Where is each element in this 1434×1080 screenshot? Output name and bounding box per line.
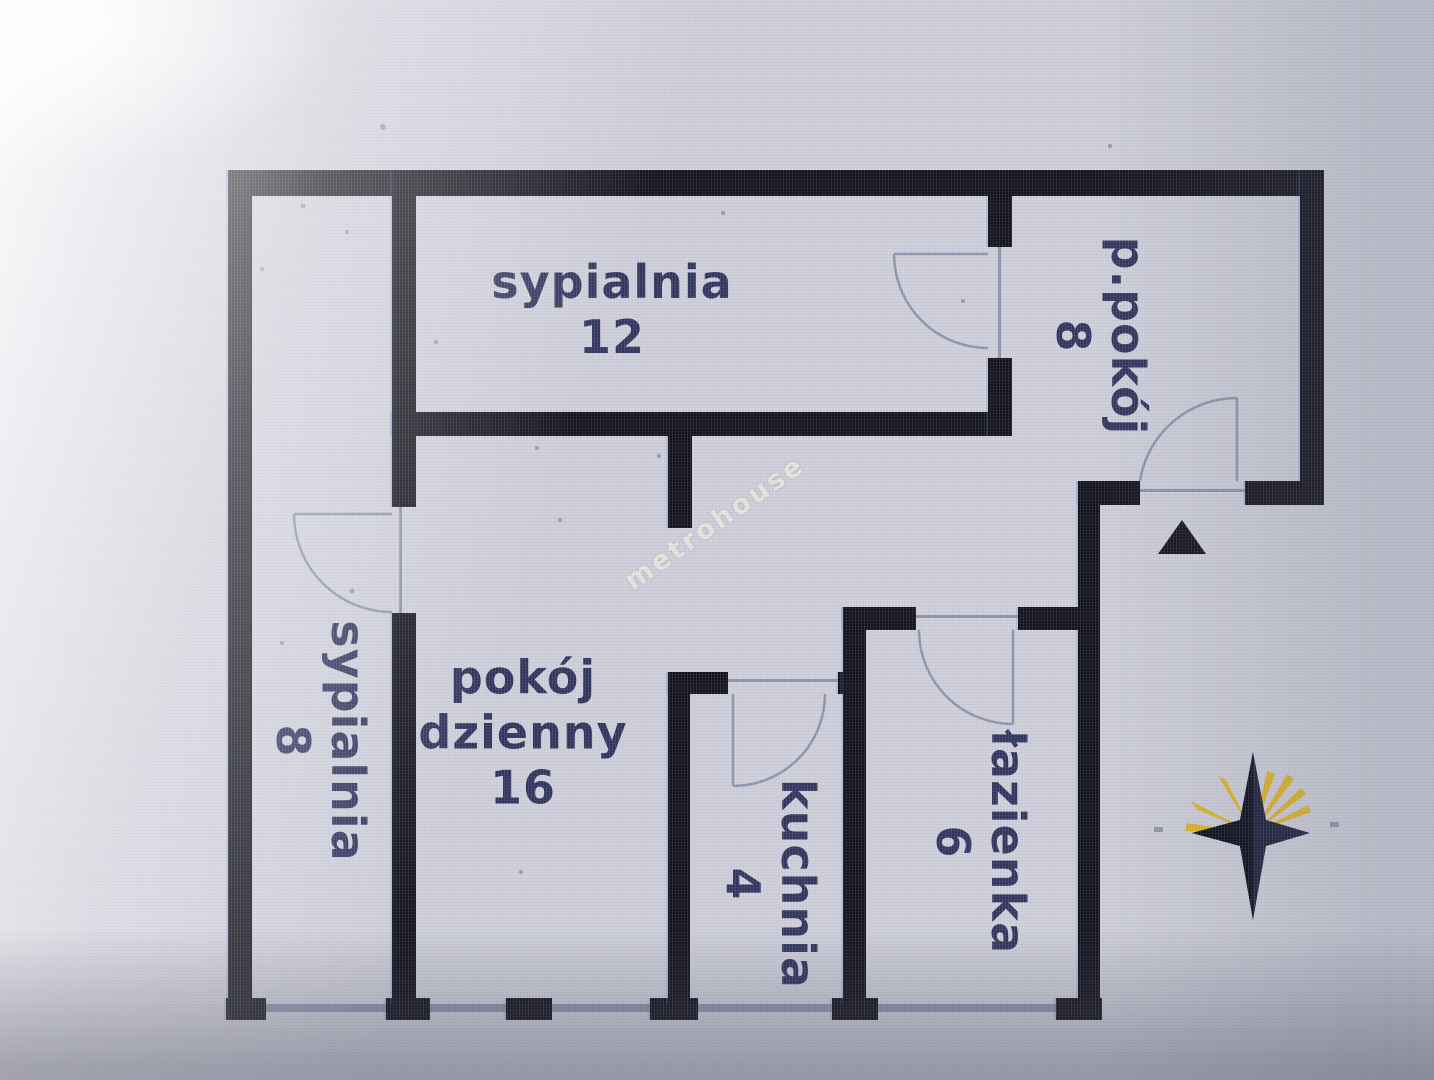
door-threshold-sypialnia12 — [998, 247, 1001, 358]
door-threshold-sypialnia8 — [399, 507, 402, 613]
room-label-p-pokoj: p.pokój 8 — [1045, 237, 1155, 436]
room-name: p.pokój — [1100, 237, 1155, 436]
wall-sypialnia8-right-lower — [392, 613, 416, 1004]
room-name: kuchnia — [770, 779, 825, 989]
wall-sypialnia12-ppokoj-lower — [988, 358, 1012, 436]
door-threshold-entrance — [1140, 489, 1245, 492]
wall-kuchnia-left — [668, 672, 690, 1004]
room-area: 6 — [925, 730, 980, 954]
room-area: 8 — [265, 620, 320, 861]
floor-plan-photo: sypialnia 12 p.pokój 8 sypialnia 8 pokój… — [0, 0, 1434, 1080]
room-label-lazienka: łazienka 6 — [925, 730, 1035, 954]
wall-right-upper — [1300, 170, 1324, 505]
wall-foot — [1056, 998, 1102, 1020]
wall-kuchnia-lazienka — [843, 607, 866, 1004]
room-name: dzienny — [418, 706, 627, 761]
wall-left — [228, 170, 252, 1016]
wall-entry-right-stub — [1245, 481, 1324, 505]
room-area: 12 — [491, 310, 732, 365]
room-name: sypialnia — [491, 255, 732, 310]
wall-sypialnia12-bottom — [392, 412, 1012, 436]
room-label-kuchnia: kuchnia 4 — [715, 779, 825, 989]
room-name: sypialnia — [320, 620, 375, 861]
room-area: 16 — [418, 761, 627, 816]
room-label-sypialnia-12: sypialnia 12 — [491, 255, 732, 365]
wall-foot — [226, 998, 266, 1020]
door-threshold-kuchnia — [728, 679, 838, 682]
room-name: łazienka — [980, 730, 1035, 954]
room-label-sypialnia-8: sypialnia 8 — [265, 620, 375, 861]
door-threshold-lazienka — [916, 615, 1018, 618]
wall-kuchnia-top-left — [668, 672, 728, 694]
room-name: pokój — [418, 651, 627, 706]
room-label-pokoj-dzienny: pokój dzienny 16 — [418, 651, 627, 816]
wall-sypialnia8-right-upper — [392, 170, 416, 507]
room-area: 8 — [1045, 237, 1100, 436]
room-area: 4 — [715, 779, 770, 989]
wall-sypialnia12-ppokoj-upper — [988, 194, 1012, 247]
wall-lazienka-top-left — [843, 607, 916, 630]
wall-right-lower — [1078, 481, 1100, 1016]
wall-lazienka-top-right — [1018, 607, 1100, 630]
wall-foot — [506, 998, 552, 1020]
wall-hall-stub — [668, 436, 692, 528]
